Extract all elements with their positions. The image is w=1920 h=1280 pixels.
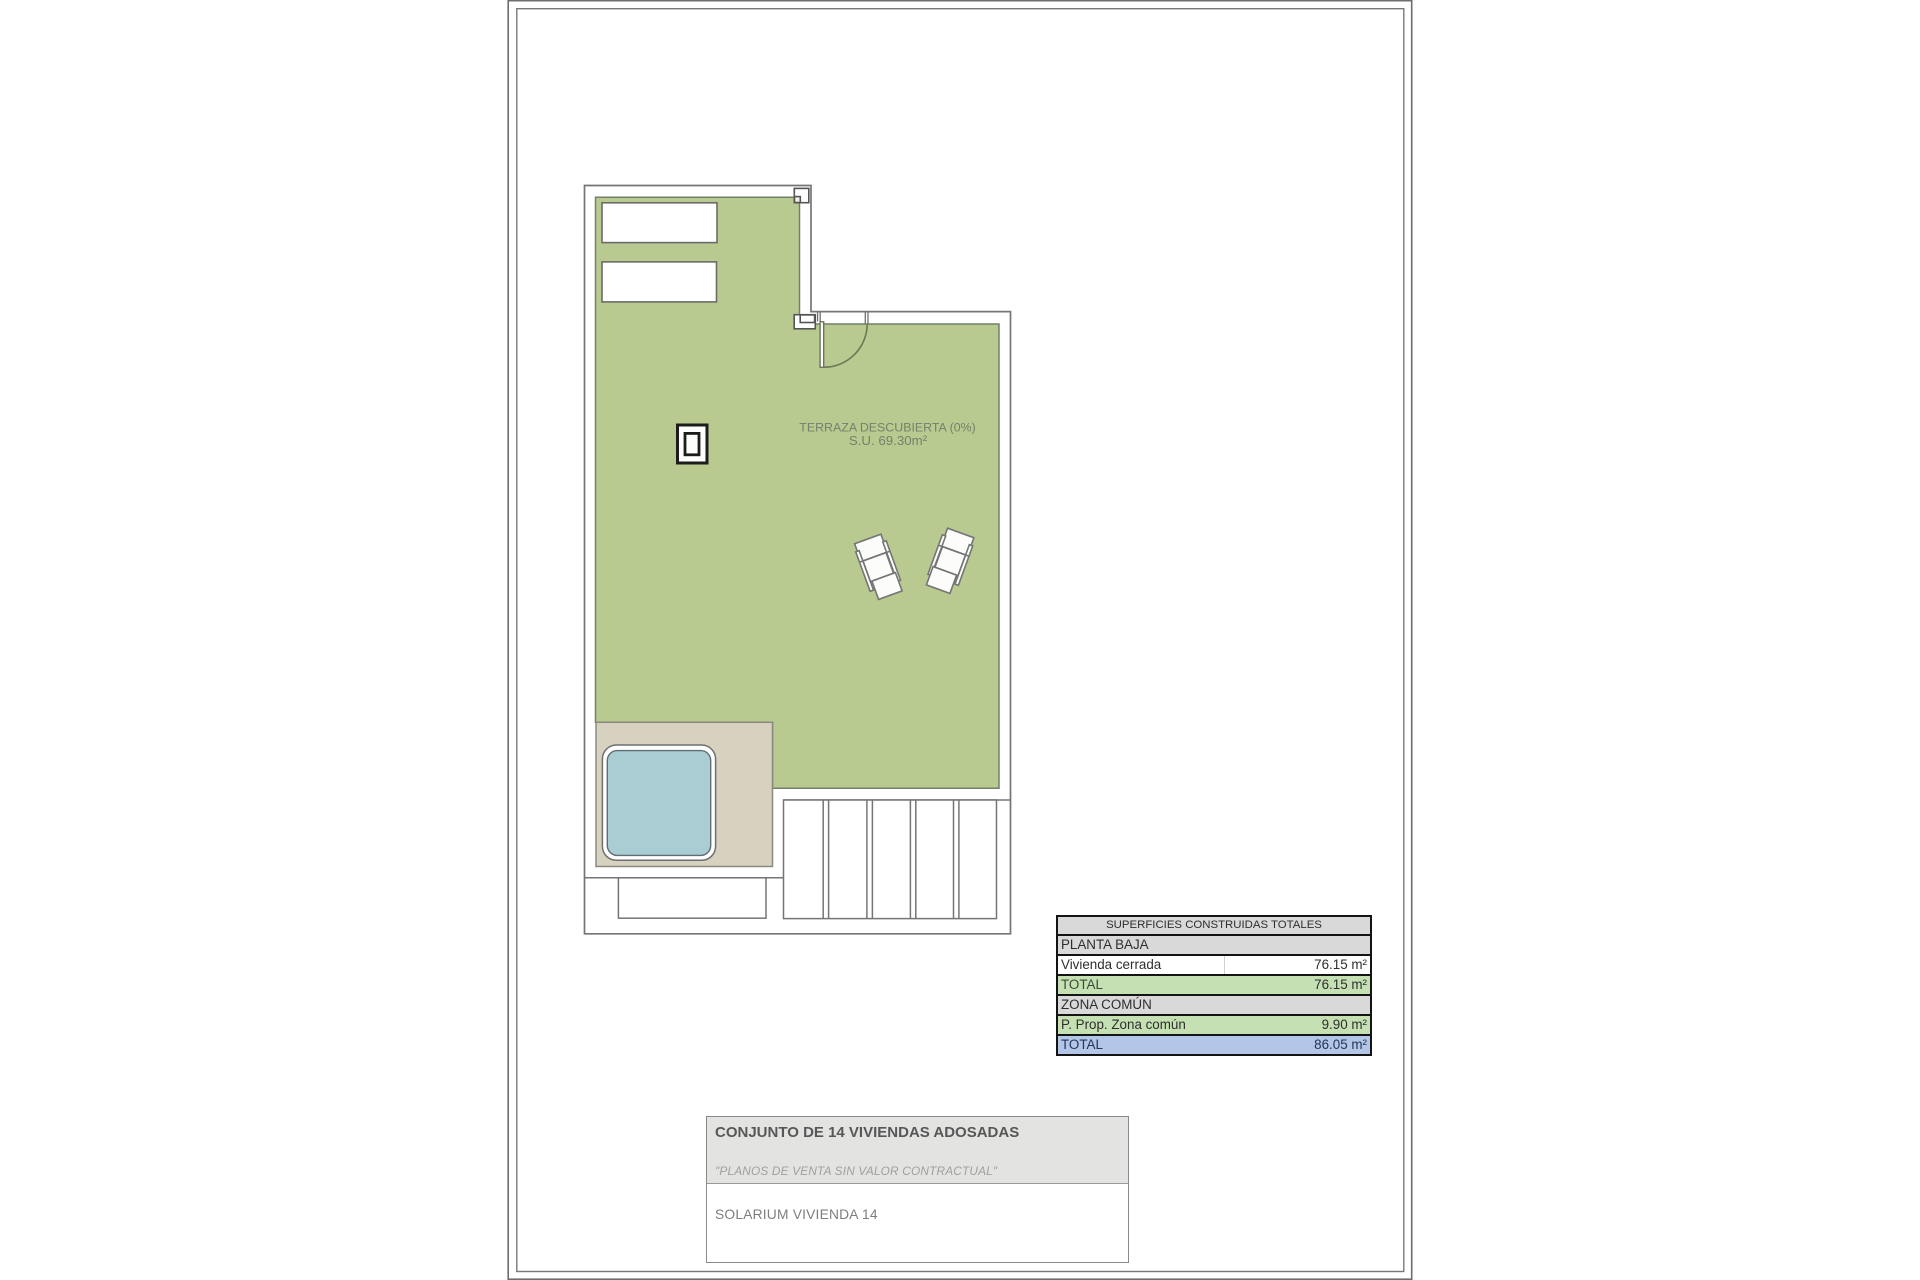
svg-text:S.U. 69.30m²: S.U. 69.30m² [849,433,928,448]
